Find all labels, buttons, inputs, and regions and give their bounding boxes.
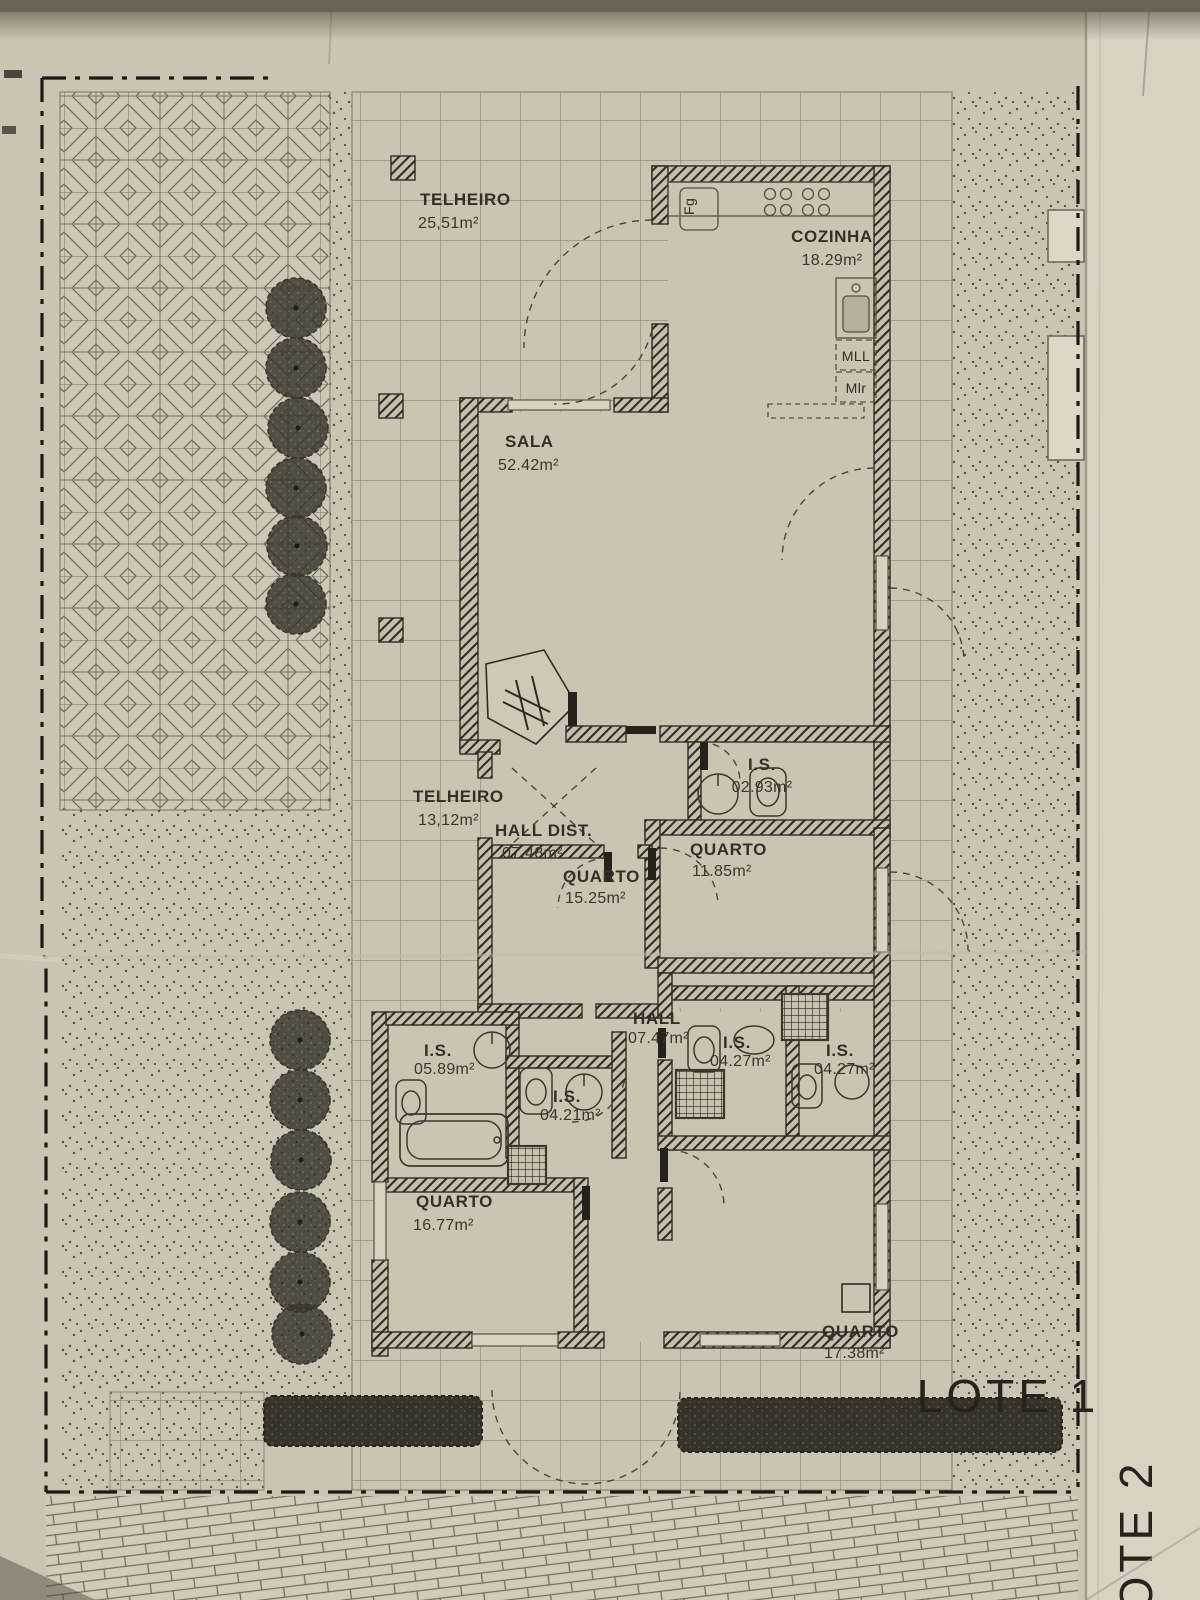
label-is-0427b-area: 04.27m² (814, 1061, 875, 1078)
shower-tray-icon-a (782, 994, 828, 1040)
label-quarto-1738-name: QUARTO (822, 1322, 899, 1341)
label-hall-dist-name: HALL DIST. (495, 821, 592, 840)
floorplan-photo: TELHEIRO 25,51m² COZINHA 18.29m² SALA 52… (0, 0, 1200, 1600)
hedge-left (264, 1396, 482, 1446)
label-is-0427a-area: 04.27m² (710, 1053, 771, 1070)
label-is-0589-area: 05.89m² (414, 1061, 475, 1078)
stipple-ground-right (952, 92, 1078, 1490)
shower-tray-icon-b (676, 1070, 724, 1118)
label-telheiro-top-area: 25,51m² (418, 215, 479, 232)
label-fridge: Fg (681, 198, 697, 215)
label-telheiro-top-name: TELHEIRO (420, 190, 511, 209)
label-sala-name: SALA (505, 432, 554, 451)
label-quarto-1185-name: QUARTO (690, 840, 767, 859)
label-is-top-name: I.S. (748, 755, 776, 774)
label-quarto-1525-area: 15.25m² (565, 890, 626, 907)
label-quarto-1185-area: 11.85m² (692, 863, 752, 880)
shower-tray-icon-c (508, 1146, 546, 1184)
label-telheiro-mid-name: TELHEIRO (413, 787, 504, 806)
label-dishwasher: MLL (842, 348, 870, 364)
paper-right-fold (1086, 0, 1200, 1600)
label-is-0421-name: I.S. (553, 1087, 581, 1106)
label-hall-area: 07.47m² (628, 1030, 689, 1047)
road-paving (46, 1496, 1078, 1600)
label-is-0421-area: 04.21m² (540, 1107, 601, 1124)
label-quarto-1677-name: QUARTO (416, 1192, 493, 1211)
label-quarto-1525-name: QUARTO (563, 867, 640, 886)
label-telheiro-mid-area: 13,12m² (418, 812, 479, 829)
label-cozinha-area: 18.29m² (802, 252, 863, 269)
label-is-0427a-name: I.S. (723, 1033, 751, 1052)
stipple-sliver (330, 92, 352, 810)
label-hall-name: HALL (633, 1009, 681, 1028)
label-washer: Mlr (846, 380, 867, 396)
label-is-0427b-name: I.S. (826, 1041, 854, 1060)
tile-patch-bottom-left (110, 1392, 264, 1490)
floorplan-drawing: TELHEIRO 25,51m² COZINHA 18.29m² SALA 52… (0, 0, 1200, 1600)
label-sala-area: 52.42m² (498, 457, 559, 474)
patio-column (842, 1284, 870, 1312)
label-is-top-area: 02.93m² (732, 779, 793, 796)
label-cozinha-name: COZINHA (791, 227, 873, 246)
label-is-0589-name: I.S. (424, 1041, 452, 1060)
label-quarto-1738-area: 17.38m² (824, 1345, 885, 1362)
label-hall-dist-area: 07.48m² (502, 845, 563, 862)
label-quarto-1677-area: 16.77m² (413, 1217, 474, 1234)
label-lote-1: LOTE 1 (917, 1370, 1100, 1422)
